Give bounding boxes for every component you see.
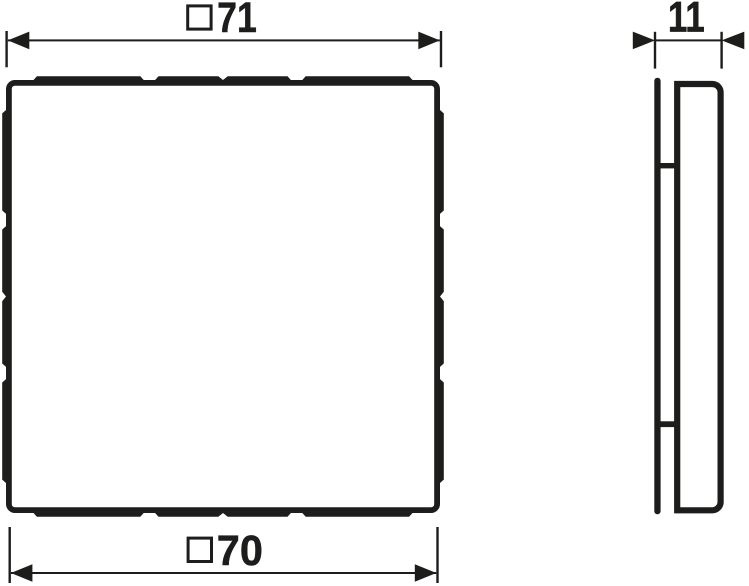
- svg-text:71: 71: [217, 0, 257, 42]
- svg-text:70: 70: [217, 526, 263, 574]
- svg-text:11: 11: [668, 0, 705, 41]
